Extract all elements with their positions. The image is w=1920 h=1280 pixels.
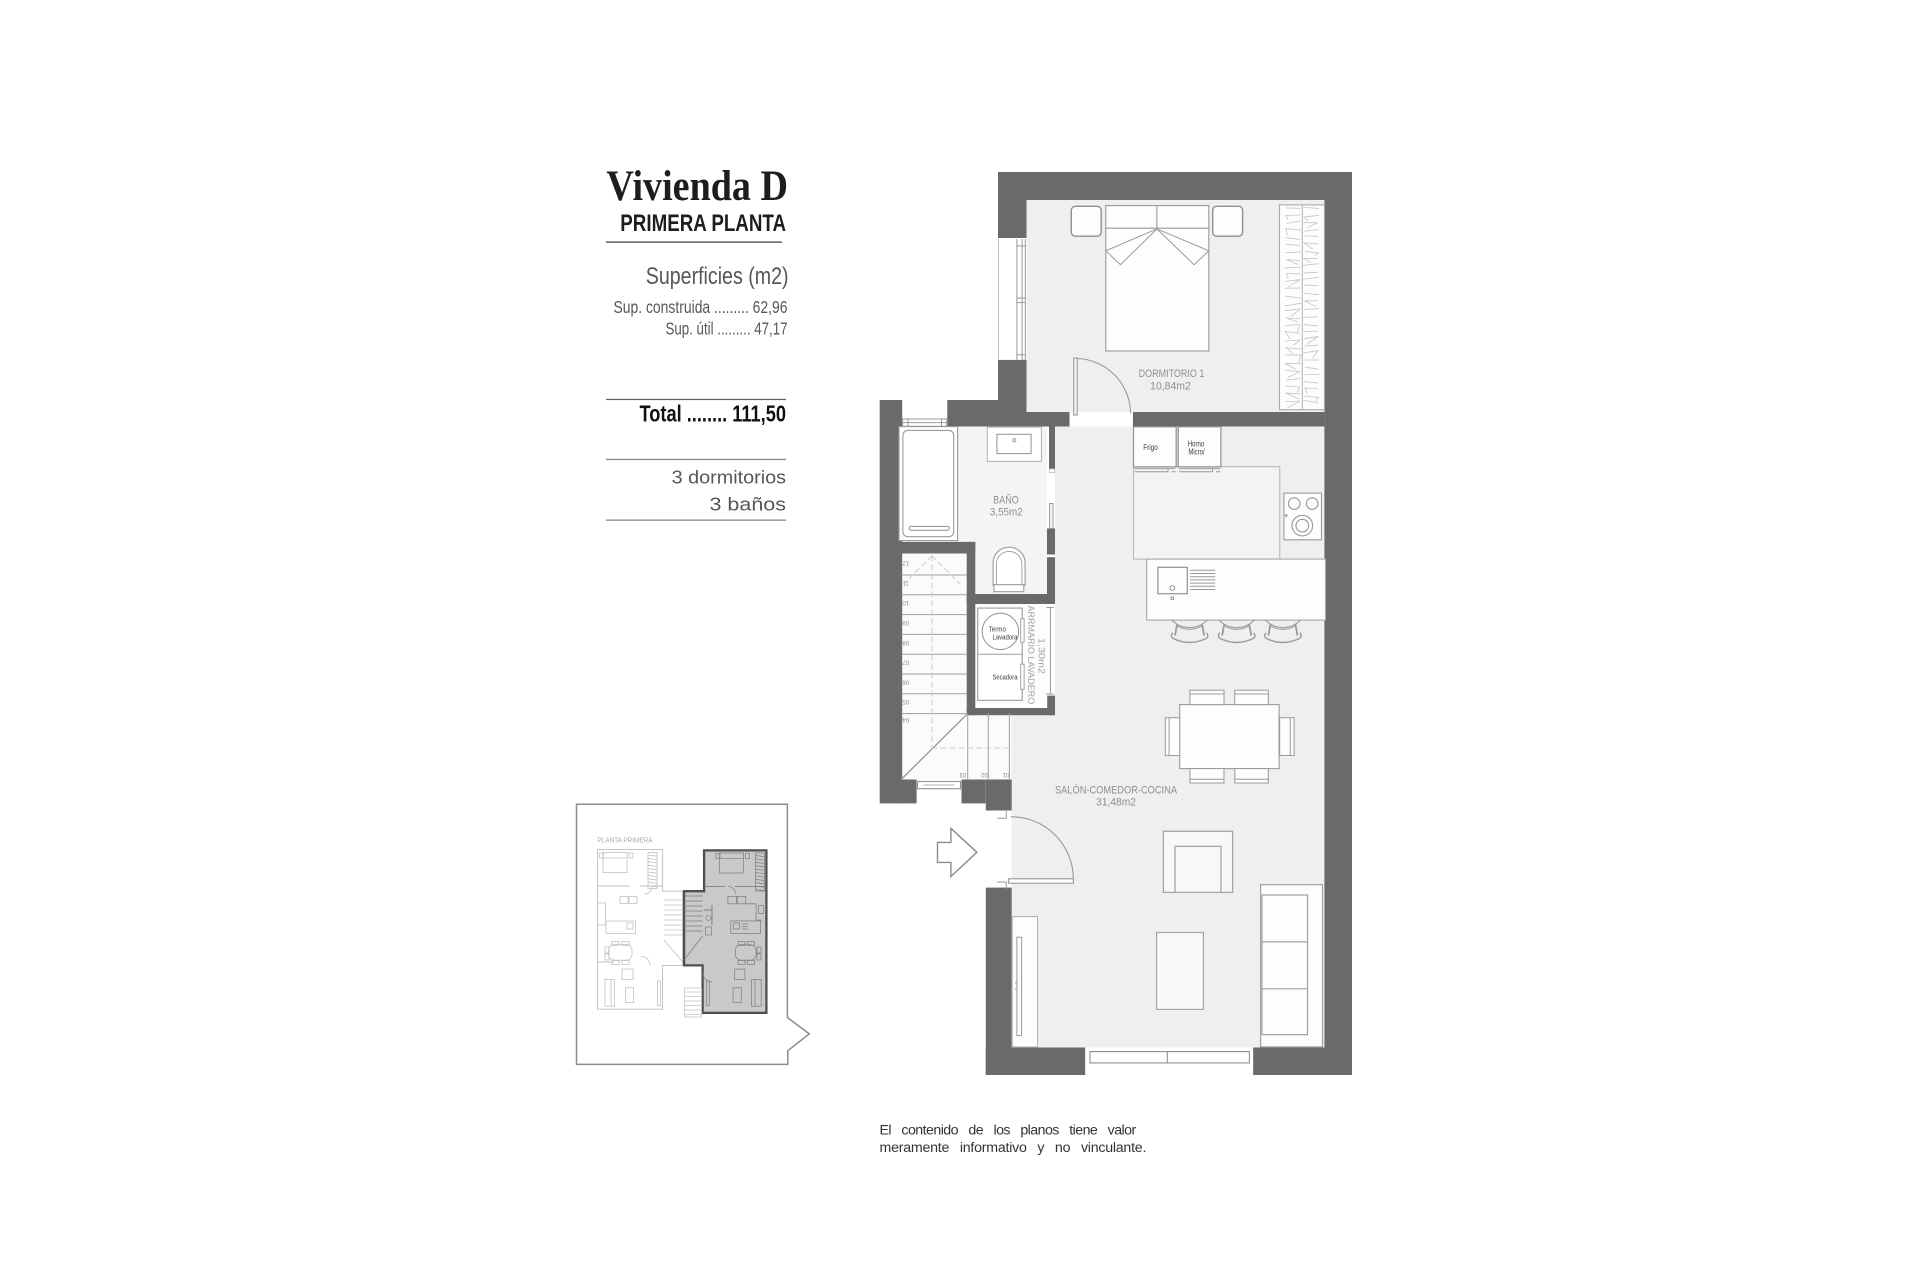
- svg-text:Secadora: Secadora: [993, 672, 1019, 681]
- svg-text:BAÑO: BAÑO: [993, 494, 1019, 507]
- svg-text:01: 01: [1002, 771, 1009, 777]
- svg-text:Superficies (m2): Superficies (m2): [646, 263, 789, 290]
- svg-text:SALÓN-COMEDOR-COCINA: SALÓN-COMEDOR-COCINA: [1055, 784, 1178, 797]
- svg-text:PRIMERA PLANTA: PRIMERA PLANTA: [620, 210, 786, 237]
- svg-text:04: 04: [902, 716, 909, 722]
- svg-text:PLANTA PRIMERA: PLANTA PRIMERA: [598, 836, 653, 845]
- svg-text:12: 12: [902, 560, 909, 566]
- svg-text:Vivienda D: Vivienda D: [606, 163, 788, 210]
- svg-text:09: 09: [902, 619, 909, 625]
- svg-text:DORMITORIO 1: DORMITORIO 1: [1139, 368, 1205, 380]
- svg-text:Sup. útil ......... 47,17: Sup. útil ......... 47,17: [666, 319, 788, 339]
- svg-text:Lavadora: Lavadora: [993, 632, 1019, 641]
- svg-text:3,55m2: 3,55m2: [990, 507, 1023, 519]
- svg-text:05: 05: [902, 698, 909, 704]
- svg-text:06: 06: [902, 678, 909, 684]
- svg-text:Micro/: Micro/: [1188, 447, 1205, 457]
- svg-text:3 dormitorios: 3 dormitorios: [672, 467, 786, 488]
- svg-text:11: 11: [902, 579, 909, 585]
- svg-text:El contenido de los planos tie: El contenido de los planos tiene valor: [880, 1123, 1137, 1139]
- svg-text:02: 02: [980, 771, 987, 777]
- svg-text:Frigo: Frigo: [1143, 442, 1158, 452]
- svg-text:meramente informativo y no vin: meramente informativo y no vinculante.: [880, 1140, 1147, 1156]
- svg-text:31,48m2: 31,48m2: [1096, 797, 1136, 809]
- svg-text:03: 03: [959, 771, 966, 777]
- svg-text:07: 07: [902, 659, 909, 665]
- svg-text:1,30m2: 1,30m2: [1037, 638, 1047, 674]
- svg-text:Total ........ 111,50: Total ........ 111,50: [640, 401, 787, 427]
- svg-text:08: 08: [902, 639, 909, 645]
- svg-text:10,84m2: 10,84m2: [1150, 381, 1191, 393]
- svg-text:Sup. construida ......... 62,9: Sup. construida ......... 62,96: [614, 297, 788, 317]
- svg-text:ARRMARIO LAVADERO: ARRMARIO LAVADERO: [1026, 606, 1036, 705]
- svg-text:10: 10: [902, 599, 909, 605]
- svg-text:3 baños: 3 baños: [710, 494, 787, 515]
